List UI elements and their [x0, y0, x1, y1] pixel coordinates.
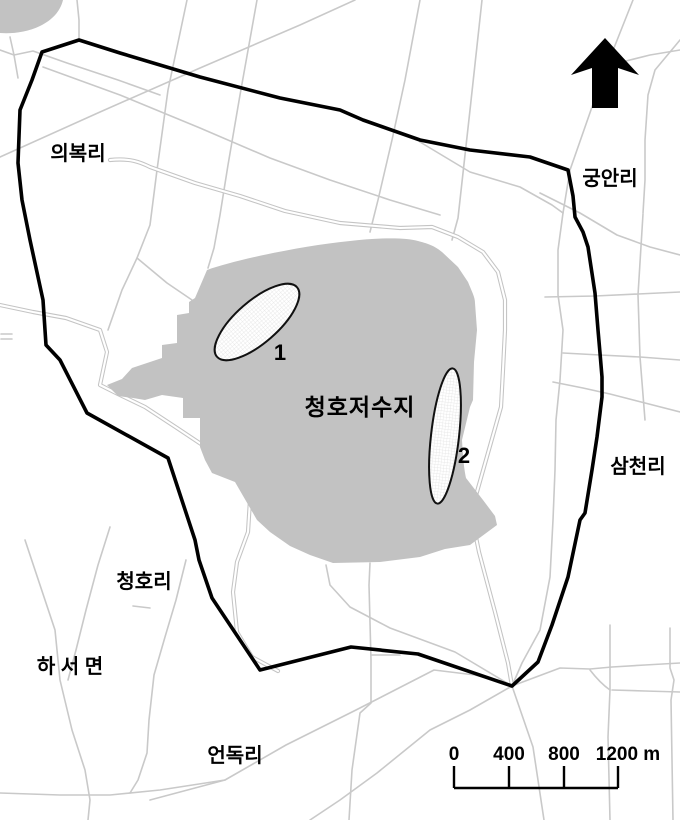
label-eondok-ri: 언독리: [207, 744, 262, 767]
label-cheongho-ri: 청호리: [116, 570, 171, 593]
scale-tick-800: 800: [548, 744, 580, 765]
map-canvas: 1 2 청호저수지 의복리 궁안리 삼천리 청호리 하 서 면 언독리 0 40…: [0, 0, 680, 820]
reservoir-label: 청호저수지: [305, 394, 416, 420]
site-2-label: 2: [458, 443, 470, 468]
label-haseo-myeon: 하 서 면: [37, 655, 103, 678]
scale-tick-1200: 1200 m: [596, 744, 660, 765]
map-figure: 1 2 청호저수지 의복리 궁안리 삼천리 청호리 하 서 면 언독리 0 40…: [0, 0, 680, 820]
label-uibok-ri: 의복리: [50, 142, 105, 165]
label-gungan-ri: 궁안리: [582, 167, 637, 190]
label-samcheon-ri: 삼천리: [610, 455, 665, 478]
scale-tick-400: 400: [493, 744, 525, 765]
scale-tick-0: 0: [449, 744, 460, 765]
site-1-label: 1: [274, 340, 286, 365]
